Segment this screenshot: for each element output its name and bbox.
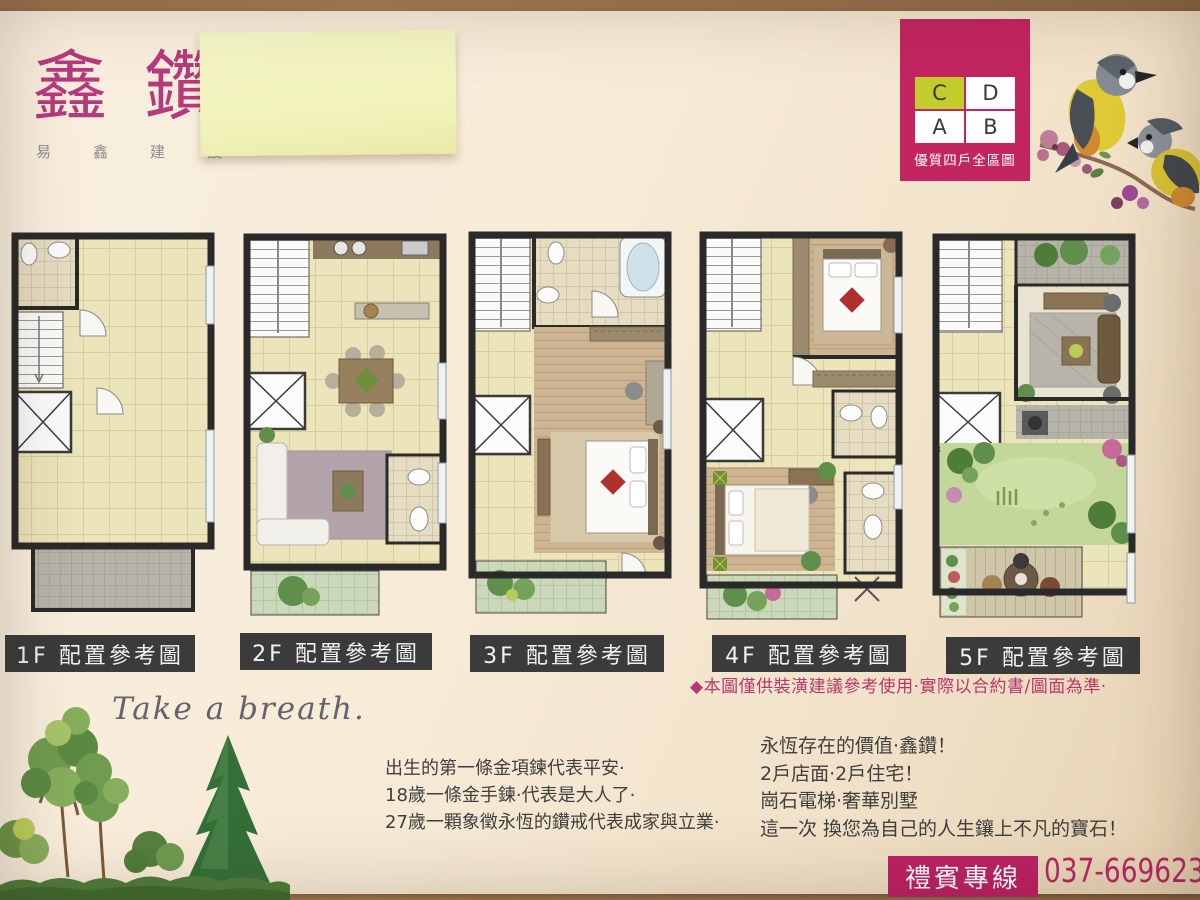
floor-plan-2f <box>237 223 457 626</box>
disclaimer-note: ◆本圖僅供裝潢建議參考使用·實際以合約書/圖面為準· <box>690 672 1107 697</box>
pitch-line: 這一次 換您為自己的人生鑲上不凡的寶石！ <box>760 816 1127 844</box>
flyer-sheet: 鑫鑽 易鑫建設 C D A B 優質四戶全區圖 <box>0 11 1200 894</box>
unit-grid: C D A B <box>915 77 1015 143</box>
floor-plan-4f <box>693 221 913 624</box>
story-paragraph: 出生的第一條金項鍊代表平安· 18歲一條金手鍊·代表是大人了· 27歲一顆象徵永… <box>385 755 720 836</box>
bed-icon <box>823 249 881 331</box>
plan-label-3f: 3F 配置參考圖 <box>470 635 664 672</box>
hotline-phone-number: 037-669623 <box>1044 851 1200 890</box>
hotline-label: 禮賓專線 <box>888 856 1038 897</box>
bed-icon <box>586 439 658 535</box>
birds-illustration <box>1035 23 1200 215</box>
sticky-note <box>199 30 456 157</box>
unit-cell-d: D <box>966 77 1015 109</box>
bed-icon <box>715 485 809 555</box>
floor-plan-3f <box>462 221 682 624</box>
garden-illustration <box>940 439 1133 545</box>
pitch-line: 崗石電梯·奢華別墅 <box>760 788 1127 816</box>
floor-plan-5f <box>926 223 1146 626</box>
plan-label-4f: 4F 配置參考圖 <box>712 635 906 672</box>
plan-label-2f: 2F 配置參考圖 <box>240 633 432 670</box>
story-line: 出生的第一條金項鍊代表平安· <box>385 755 720 782</box>
unit-cell-c: C <box>915 77 964 109</box>
story-line: 18歲一條金手鍊·代表是大人了· <box>385 782 720 809</box>
plan-label-1f: 1F 配置參考圖 <box>5 635 195 672</box>
pitch-line: 永恆存在的價值·鑫鑽！ <box>760 733 1127 761</box>
unit-overview-box: C D A B 優質四戶全區圖 <box>900 19 1030 181</box>
deck-illustration <box>940 547 1082 617</box>
unit-cell-a: A <box>915 111 964 143</box>
unit-grid-caption: 優質四戶全區圖 <box>900 149 1030 169</box>
pitch-paragraph: 永恆存在的價值·鑫鑽！ 2戶店面·2戶住宅！ 崗石電梯·奢華別墅 這一次 換您為… <box>760 733 1127 843</box>
trees-illustration <box>0 699 300 900</box>
bathtub-icon <box>620 237 666 297</box>
plan-label-5f: 5F 配置參考圖 <box>946 637 1140 674</box>
pitch-line: 2戶店面·2戶住宅！ <box>760 761 1127 789</box>
floor-plan-1f <box>5 222 225 625</box>
flyer-photo: 鑫鑽 易鑫建設 C D A B 優質四戶全區圖 <box>0 0 1200 900</box>
unit-cell-b: B <box>966 111 1015 143</box>
story-line: 27歲一顆象徵永恆的鑽戒代表成家與立業· <box>385 809 720 836</box>
